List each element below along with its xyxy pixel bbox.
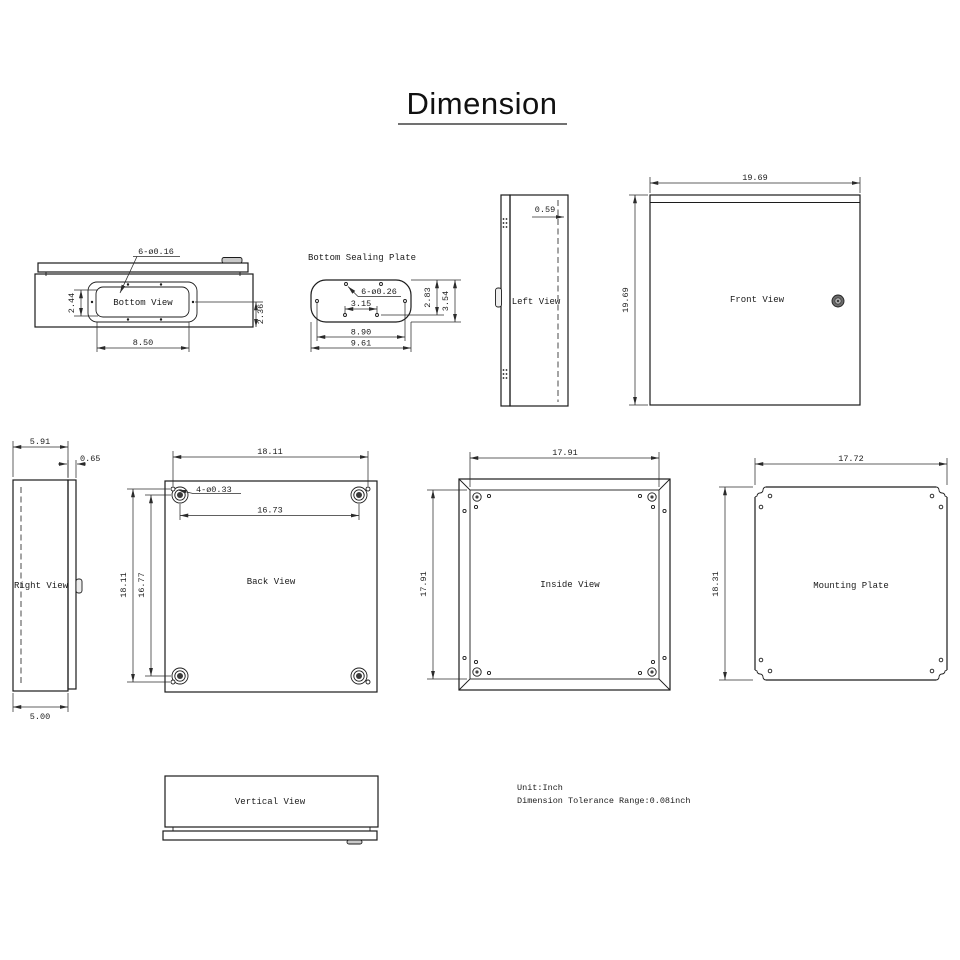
hole: [663, 656, 666, 659]
hinge-dot: [506, 369, 508, 371]
frame-miter: [659, 679, 670, 690]
hinge-dots-bottom: [503, 369, 508, 379]
inside-view-label: Inside View: [540, 580, 600, 590]
boss-center: [356, 492, 362, 498]
hole: [487, 494, 490, 497]
hole: [651, 660, 654, 663]
hole: [463, 656, 466, 659]
view-inside: 17.91 17.91 Inside View: [419, 448, 670, 690]
hole: [463, 509, 466, 512]
leader-line: [120, 257, 137, 294]
hole: [487, 671, 490, 674]
hinge-dots-top: [503, 218, 508, 228]
screw-dot: [127, 283, 129, 285]
hinge-dot: [506, 377, 508, 379]
drawing-title: Dimension: [398, 86, 567, 124]
back-view-label: Back View: [247, 577, 296, 587]
corner-notch: [936, 670, 947, 680]
vertical-view-label: Vertical View: [235, 797, 306, 807]
corner-clip-screw: [650, 495, 653, 498]
hole: [171, 487, 175, 491]
hole: [366, 680, 370, 684]
hole: [768, 494, 772, 498]
leader-line: [348, 287, 358, 297]
screw-dot: [160, 318, 162, 320]
view-right: 5.91 0.65 5.00 Right View: [13, 437, 100, 722]
dim-inside-width: 17.91: [552, 448, 578, 458]
bottom-handle: [222, 258, 242, 264]
dim-sealing-height: 3.54: [441, 291, 451, 311]
dim-right-depth: 5.91: [30, 437, 50, 447]
dim-back-hole-span-w: 18.11: [257, 447, 283, 457]
dim-sealing-inner-height: 2.83: [423, 287, 433, 307]
corner-clip-screw: [650, 670, 653, 673]
hole: [171, 680, 175, 684]
corner-clip-screw: [475, 670, 478, 673]
hinge-dot: [506, 373, 508, 375]
dim-back-boss-span-h: 16.77: [137, 572, 147, 598]
hole: [376, 314, 379, 317]
corner-notch: [755, 487, 766, 497]
note-tolerance: Dimension Tolerance Range:0.08inch: [517, 796, 690, 806]
screw-dot: [160, 283, 162, 285]
screw-dot: [127, 318, 129, 320]
hinge-dot: [503, 218, 505, 220]
dim-inside-height: 17.91: [419, 571, 429, 597]
corner-clip-screw: [475, 495, 478, 498]
bottom-view-label: Bottom View: [113, 298, 173, 308]
dim-sealing-hole-gap: 3.15: [351, 299, 371, 309]
hole: [474, 660, 477, 663]
hole: [663, 509, 666, 512]
hole: [768, 669, 772, 673]
boss-center: [177, 492, 183, 498]
dim-sealing-hole-span: 8.90: [351, 328, 371, 338]
dimension-drawing-page: Dimension Bottom View 6-ø0.16 2.44 2.36: [0, 0, 960, 960]
hole: [638, 671, 641, 674]
hinge-dot: [503, 373, 505, 375]
right-door-edge: [68, 480, 76, 689]
boss-center: [177, 673, 183, 679]
lock-icon: [832, 295, 844, 307]
lock-center: [837, 300, 839, 302]
hole: [404, 300, 407, 303]
view-left: 0.59 Left View: [496, 195, 569, 406]
dim-bottom-flange-height: 2.36: [256, 304, 266, 324]
hinge-dot: [506, 222, 508, 224]
hole: [638, 494, 641, 497]
hole: [651, 505, 654, 508]
frame-miter: [659, 479, 670, 490]
corner-notch: [936, 487, 947, 497]
dim-front-width: 19.69: [742, 173, 768, 183]
hole: [759, 658, 763, 662]
hole: [759, 505, 763, 509]
dim-mounting-height: 18.31: [711, 571, 721, 597]
view-bottom: Bottom View 6-ø0.16 2.44 2.36 8.50: [35, 247, 266, 352]
view-vertical: Vertical View: [163, 776, 378, 844]
frame-miter: [459, 679, 470, 690]
view-front: 19.69 19.69 Front View: [621, 173, 860, 405]
hole: [380, 283, 383, 286]
screw-dot: [192, 301, 194, 303]
hole: [344, 314, 347, 317]
right-handle: [76, 579, 82, 593]
front-view-label: Front View: [730, 295, 785, 305]
dim-bottom-hole-span: 8.50: [133, 338, 153, 348]
mounting-boss: [351, 487, 367, 503]
dim-right-body-depth: 5.00: [30, 712, 50, 722]
dim-bottom-hole-note: 6-ø0.16: [138, 247, 174, 257]
dim-bottom-inner-height: 2.44: [67, 293, 77, 313]
hinge-dot: [503, 377, 505, 379]
dim-front-height: 19.69: [621, 287, 631, 313]
left-handle: [496, 288, 502, 307]
vertical-handle: [347, 840, 362, 844]
view-bottom-sealing-plate: Bottom Sealing Plate 6-ø0.26 3.15 8.90 9…: [308, 253, 461, 352]
hinge-dot: [503, 369, 505, 371]
dim-sealing-hole-note: 6-ø0.26: [361, 287, 397, 297]
dim-back-hole-span-h: 18.11: [119, 572, 129, 598]
hinge-dot: [506, 218, 508, 220]
frame-miter: [459, 479, 470, 490]
right-view-label: Right View: [14, 581, 69, 591]
hole: [939, 658, 943, 662]
dim-right-door-thickness: 0.65: [80, 454, 100, 464]
page-title: Dimension: [407, 86, 558, 121]
boss-center: [356, 673, 362, 679]
hole: [930, 494, 934, 498]
hole: [939, 505, 943, 509]
mounting-plate-label: Mounting Plate: [813, 581, 889, 591]
hinge-dot: [506, 226, 508, 228]
view-mounting-plate: 17.72 18.31 Mounting Plate: [711, 454, 947, 680]
hole: [930, 669, 934, 673]
hole: [474, 505, 477, 508]
dimension-drawing: Dimension Bottom View 6-ø0.16 2.44 2.36: [0, 0, 960, 960]
bottom-door-plate: [38, 263, 248, 272]
mounting-boss: [351, 668, 367, 684]
view-back: 18.11 4-ø0.33 16.73 18.11 16.77 Back Vie…: [119, 447, 377, 692]
vertical-door-plate: [163, 831, 377, 840]
dim-sealing-width: 9.61: [351, 339, 371, 349]
left-door-edge: [501, 195, 510, 406]
hole: [316, 300, 319, 303]
hole: [345, 283, 348, 286]
drawing-notes: Unit:Inch Dimension Tolerance Range:0.08…: [517, 783, 690, 806]
dim-back-boss-span-w: 16.73: [257, 506, 283, 516]
hole: [366, 487, 370, 491]
dim-mounting-width: 17.72: [838, 454, 864, 464]
dim-left-door-inset: 0.59: [535, 205, 555, 215]
hinge-dot: [503, 226, 505, 228]
screw-dot: [91, 301, 93, 303]
note-unit: Unit:Inch: [517, 783, 563, 793]
hinge-dot: [503, 222, 505, 224]
sealing-plate-label: Bottom Sealing Plate: [308, 253, 416, 263]
corner-notch: [755, 670, 766, 680]
left-view-label: Left View: [512, 297, 561, 307]
